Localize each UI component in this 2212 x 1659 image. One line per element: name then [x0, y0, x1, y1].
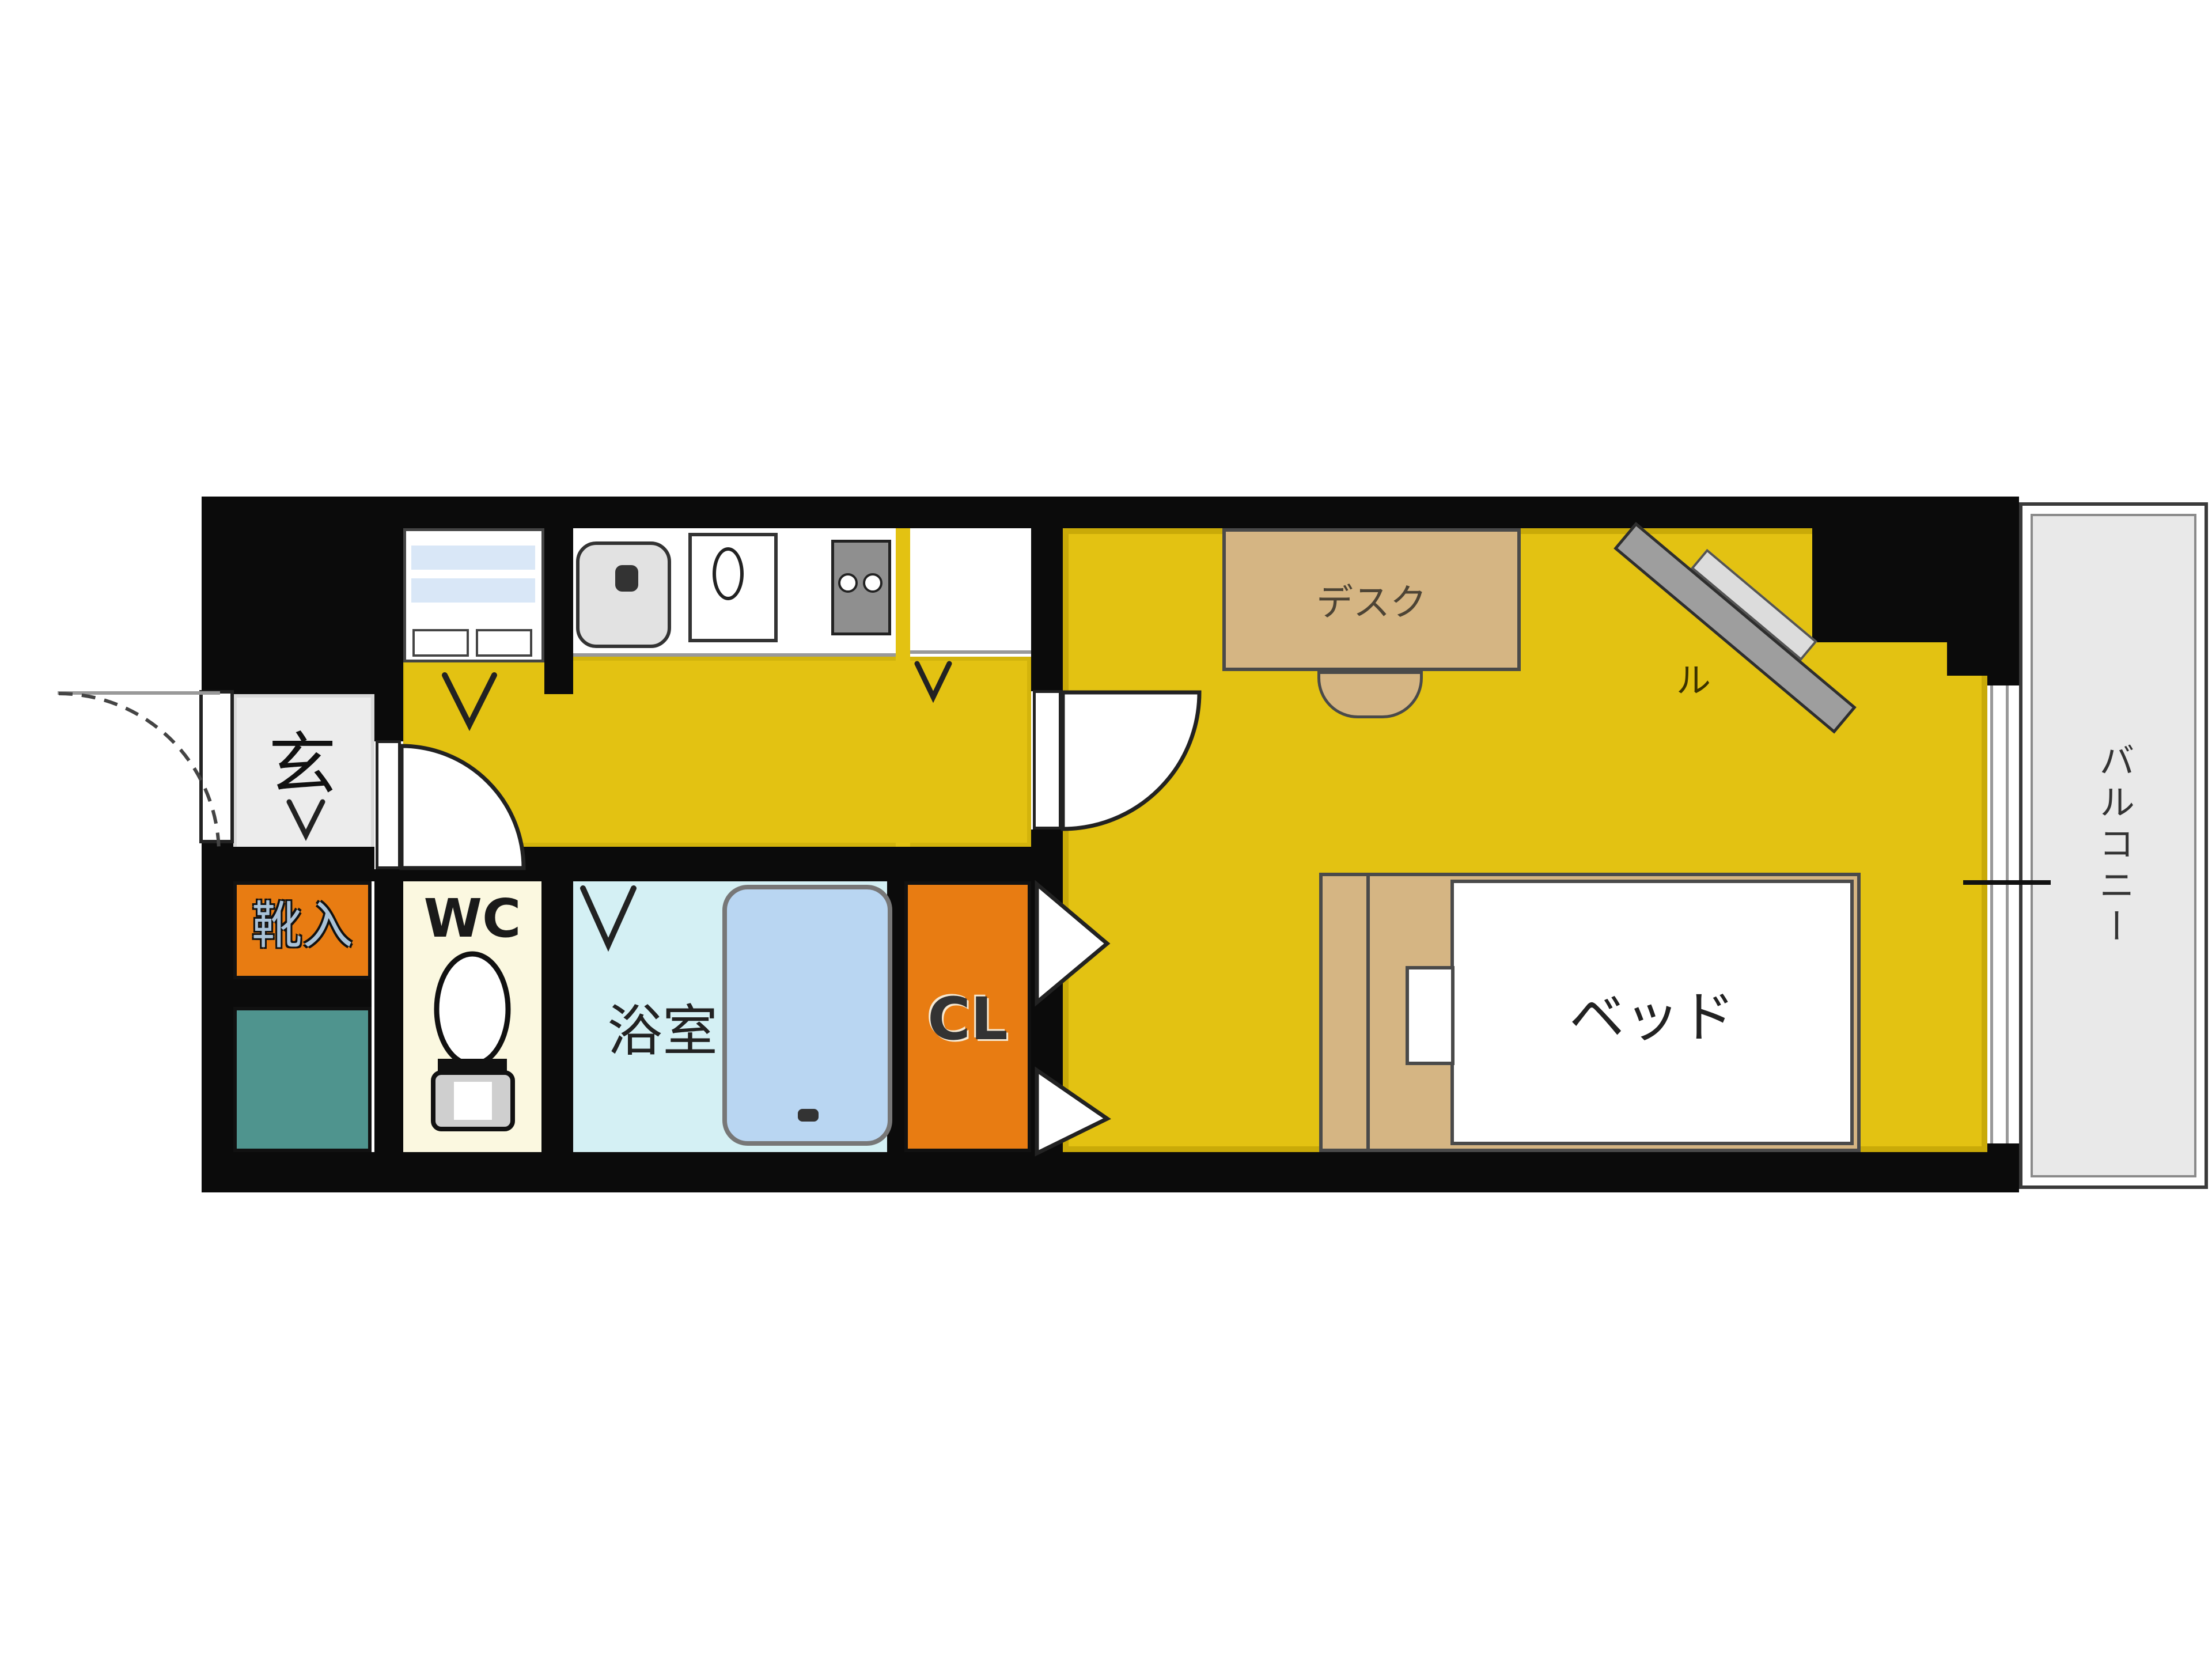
wc-label: WC	[403, 890, 541, 948]
washer-pan-cell	[412, 629, 469, 657]
room-door-leaf	[1033, 690, 1062, 829]
hall-door-leaf	[376, 740, 401, 869]
wall-utility-block	[233, 528, 403, 694]
wall-top-right-block	[1812, 497, 1987, 642]
entrance-label: 玄	[253, 727, 351, 802]
window-frame-line	[1990, 685, 1993, 1143]
wall-strip	[544, 528, 573, 694]
wall-bottom	[202, 1152, 2019, 1192]
entrance-door-open-line	[58, 691, 220, 695]
wall-bath-closet	[887, 881, 904, 1152]
balcony: バルコニー	[2031, 514, 2196, 1177]
burner-knob-icon	[838, 573, 858, 593]
washer-lid-stripe	[411, 546, 535, 570]
bed-label: ベッド	[1569, 972, 1735, 1052]
wall-top-right-step	[1947, 642, 1987, 676]
floor-plan: デスク ベッド ル バルコニー	[0, 0, 2212, 1659]
washer-pan-cell	[476, 629, 532, 657]
tv-label: ル	[1668, 658, 1719, 704]
burner-flame-icon	[713, 547, 744, 600]
bed-pillow	[1406, 966, 1455, 1065]
entrance-door-leaf	[199, 690, 234, 843]
desk-label: デスク	[1316, 573, 1427, 626]
bed-headboard-line	[1366, 874, 1370, 1150]
wall-wc-bath	[541, 881, 573, 1152]
wall-center	[1031, 528, 1063, 1152]
bed-mattress: ベッド	[1450, 880, 1854, 1145]
desk: デスク	[1222, 528, 1521, 671]
bathroom-label: 浴室	[573, 999, 752, 1063]
wall-left	[202, 497, 233, 1192]
window-frame-line	[2006, 685, 2009, 1143]
entrance-door-swing-icon	[59, 694, 219, 854]
washer-lid-stripe	[411, 578, 535, 603]
kitchen-sink-icon	[576, 541, 671, 648]
balcony-label: バルコニー	[2088, 742, 2139, 949]
kitchen-hall-floor	[400, 657, 1031, 847]
faucet-icon	[615, 565, 638, 592]
wall-shoe-divider	[233, 979, 372, 1007]
closet-label: CL	[904, 988, 1031, 1051]
wall-hall-bottom	[233, 847, 1031, 881]
wall-top	[202, 497, 2019, 528]
utility-tile	[233, 1007, 372, 1152]
refrigerator-space-icon	[910, 528, 1031, 654]
hall-floor-strip	[896, 528, 910, 847]
shoe-storage-label: 靴入	[233, 894, 372, 957]
burner-knob-icon	[863, 573, 882, 593]
